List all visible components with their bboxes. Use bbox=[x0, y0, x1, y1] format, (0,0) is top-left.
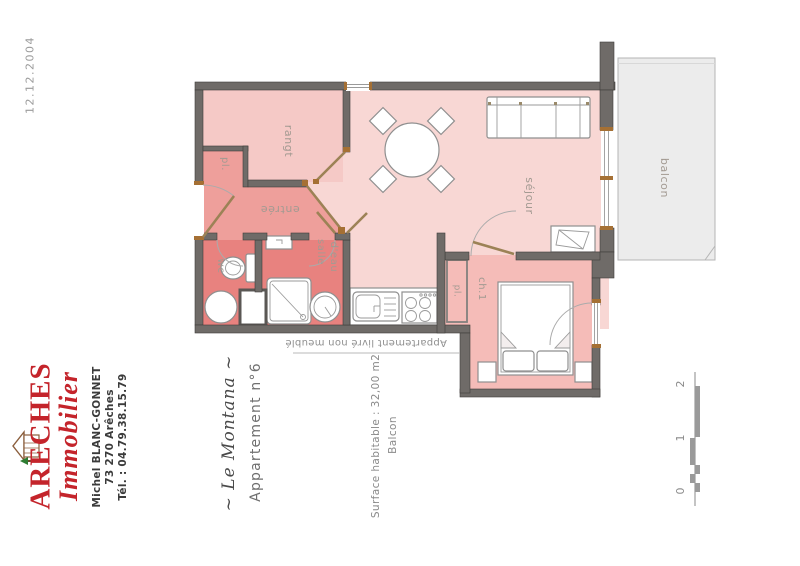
scale-label-0: 0 bbox=[674, 488, 687, 495]
scale-label-1: 1 bbox=[674, 435, 687, 442]
label-pl-entree: pl. bbox=[219, 157, 230, 171]
nightstand-left bbox=[478, 362, 496, 382]
floorplan-page: 12.12.2004 ARECHES Immobilier Michel BLA… bbox=[0, 0, 800, 566]
bed bbox=[498, 282, 573, 375]
label-entree: entrée bbox=[260, 203, 299, 216]
washing-machine bbox=[310, 292, 340, 322]
sejour-bay-window bbox=[600, 127, 613, 230]
label-rangt: rangt bbox=[282, 125, 295, 158]
front-door-opening bbox=[194, 181, 204, 240]
nightstand-right bbox=[575, 362, 592, 382]
label-wc: wc bbox=[215, 259, 226, 274]
shower-tray bbox=[267, 278, 311, 324]
balcony: balcon bbox=[618, 58, 715, 260]
kitchen-hob bbox=[402, 292, 437, 323]
kitchen-sink bbox=[353, 292, 399, 321]
label-salle: salle bbox=[315, 239, 326, 265]
label-pl-ch1: pl. bbox=[452, 285, 462, 298]
label-deau: d'eau bbox=[328, 242, 339, 273]
ch1-window bbox=[592, 299, 601, 348]
floor-plan: balcon bbox=[0, 0, 800, 566]
delivery-note: Appartement livré non meublé bbox=[285, 337, 447, 349]
wc-basin bbox=[205, 291, 237, 323]
kitchen-counter bbox=[350, 288, 438, 325]
label-balcon: balcon bbox=[658, 158, 671, 198]
scale-bar: 2 1 0 bbox=[674, 372, 700, 506]
utility-cupboard bbox=[240, 290, 266, 325]
top-window bbox=[344, 81, 372, 91]
scale-label-2: 2 bbox=[674, 381, 687, 388]
hall-basin bbox=[266, 236, 292, 249]
tv-unit bbox=[551, 226, 595, 252]
label-ch1: ch.1 bbox=[476, 277, 487, 301]
sofa bbox=[487, 97, 590, 138]
label-sejour: séjour bbox=[523, 177, 536, 214]
